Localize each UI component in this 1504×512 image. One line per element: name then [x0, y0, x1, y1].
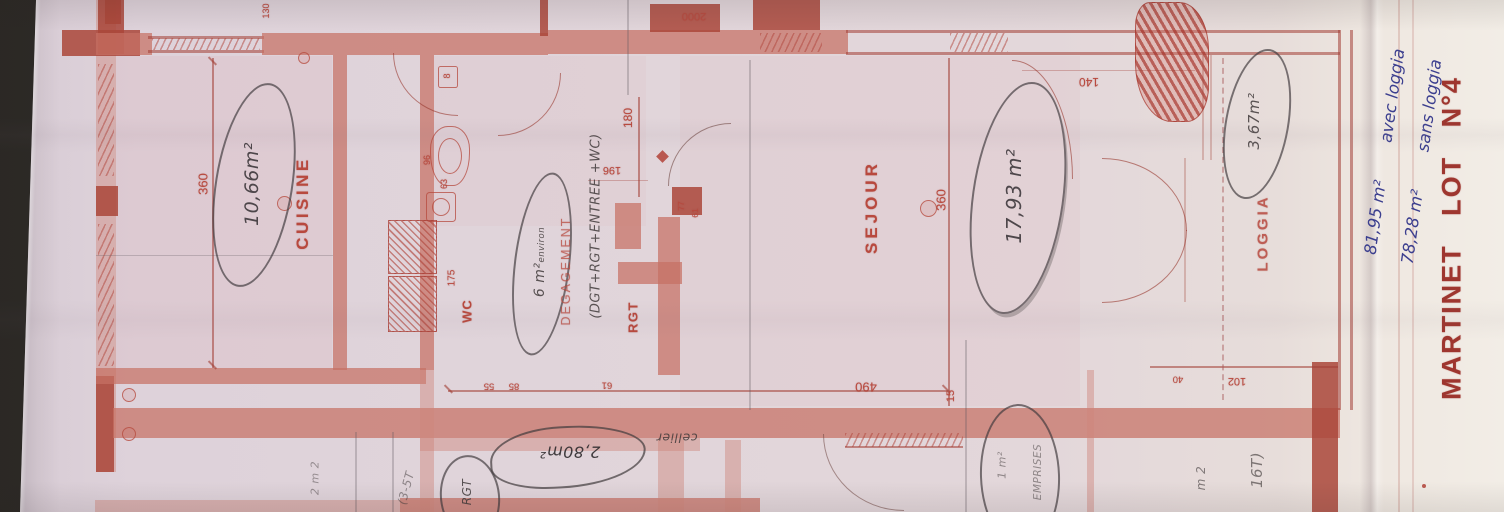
dimension-label: 61 [690, 208, 700, 217]
dimension-label: 63 [439, 179, 449, 189]
dimension-label: 180 [621, 108, 635, 128]
dimension-label: 175 [447, 270, 458, 287]
room-label-wc: WC [460, 299, 475, 323]
construction-line [392, 432, 394, 512]
vent-icon [298, 52, 310, 64]
dimension-label: 490 [855, 380, 877, 395]
loggia-dashed-line [1222, 58, 1224, 400]
wall-segment [95, 500, 430, 512]
room-label-loggia: LOGGIA [1255, 194, 1272, 271]
wall-segment [1312, 362, 1338, 512]
window-line [148, 50, 264, 53]
wall-segment [725, 440, 741, 512]
construction-line [96, 255, 333, 256]
wall-line [1202, 55, 1204, 160]
wall-hatch [98, 224, 114, 366]
dimension-label: 196 [603, 164, 621, 176]
dimension-line [1022, 70, 1195, 71]
handwritten-note-cuisine-area: 10,66m² [241, 142, 263, 226]
dimension-label: 8 [442, 73, 452, 78]
handwritten-note-emprise: EMPRISES [1032, 444, 1044, 500]
room-label-sejour: SEJOUR [862, 160, 882, 254]
window-hatch [950, 33, 1008, 52]
dimension-label: 360 [196, 173, 211, 195]
construction-line [627, 0, 629, 95]
wall-hatch [98, 64, 114, 176]
wall-segment [96, 33, 152, 55]
area-suffix: sans loggia [1413, 58, 1445, 153]
handwritten-note-cellier-area: 2,80m² [540, 443, 601, 462]
railing-line [846, 30, 1340, 33]
wall-segment [333, 55, 347, 370]
wall-segment [113, 408, 1340, 438]
construction-line [749, 60, 751, 410]
dgt-area-unit: environ [537, 227, 547, 263]
dimension-label: 140 [1079, 75, 1099, 89]
floor-plan-photo: CUISINE DEGAGEMENT RGT WC SEJOUR LOGGIA … [0, 0, 1504, 512]
dimension-label: 40 [1173, 374, 1184, 385]
wall-scribble [1135, 2, 1209, 122]
dimension-label: 55 [484, 381, 495, 392]
dgt-area-value: 6 m² [532, 262, 548, 297]
dimension-line [948, 58, 950, 406]
construction-line [965, 340, 967, 512]
wall-segment [540, 0, 548, 36]
handwritten-note-rgt: RGT [460, 479, 474, 505]
wall-segment [753, 0, 820, 30]
handwritten-note-dgt-detail: (DGT+RGT+ENTREE +WC) [589, 133, 604, 318]
wall-segment [420, 370, 434, 512]
handwritten-note-left: 2 m 2 [309, 461, 322, 495]
dimension-label: 102 [1228, 375, 1246, 387]
dimension-line [638, 97, 640, 197]
dimension-label: 360 [934, 189, 949, 211]
wall-segment [96, 186, 118, 216]
handwritten-note-right: m 2 [1194, 466, 1208, 491]
construction-line [355, 432, 357, 512]
sink-basin [432, 198, 450, 216]
dimension-line [1150, 366, 1338, 368]
ink-dot [1422, 484, 1426, 488]
wall-segment [105, 0, 121, 24]
wall-segment [615, 203, 641, 249]
dimension-label: 2000 [682, 10, 706, 22]
wall-line [1210, 55, 1212, 160]
dimension-label: 77 [676, 201, 686, 210]
window-hatch [760, 33, 822, 52]
handwritten-note-cellier: cellier [656, 431, 697, 446]
railing-line [1338, 30, 1341, 410]
dimension-label: 61 [602, 380, 613, 391]
outlet-icon [122, 388, 136, 402]
duct-hatch [388, 220, 437, 274]
room-label-degagement: DEGAGEMENT [559, 217, 573, 326]
area-value: 78,28 m² [1398, 188, 1427, 265]
handwritten-note-loggia-area: 3,67m² [1245, 92, 1263, 149]
window-hatch [152, 38, 260, 50]
room-label-rgt: RGT [626, 301, 641, 333]
duct-hatch [388, 276, 437, 332]
toilet-bowl [438, 138, 462, 174]
dimension-label: 15 [945, 390, 957, 402]
handwritten-note-right2: 16T) [1248, 452, 1266, 488]
dimension-label: 96 [422, 155, 432, 165]
handwritten-note-sejour-area: 17,93 m² [1002, 148, 1026, 243]
handwritten-note-dgt-area: 6 m²environ [532, 227, 548, 297]
dimension-label: 130 [261, 3, 271, 18]
wall-segment [1087, 370, 1094, 512]
door-leaf-line [1184, 158, 1186, 302]
outlet-icon [122, 427, 136, 441]
room-label-cuisine: CUISINE [293, 156, 313, 249]
wall-segment [658, 217, 680, 375]
dimension-label: 85 [509, 381, 520, 392]
wall-segment [96, 368, 426, 384]
wall-segment [96, 376, 114, 472]
handwritten-note-emprise-value: 1 m² [996, 451, 1009, 479]
wall-segment [658, 437, 684, 512]
